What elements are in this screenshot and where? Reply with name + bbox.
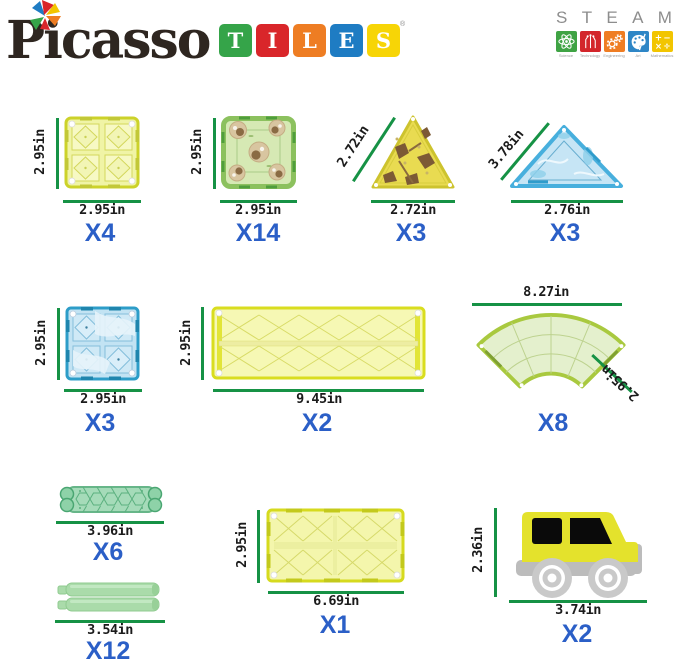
dimension-line (494, 508, 497, 597)
straight-rail-pieces (56, 581, 163, 615)
dimension-line (56, 118, 59, 189)
field-label: Art (626, 53, 650, 58)
quantity-label: X2 (262, 409, 372, 438)
height-dimension: 2.95in (189, 120, 207, 184)
height-dimension: 2.95in (32, 120, 50, 184)
steam-letters: S T E A M (552, 8, 676, 28)
science-square (556, 31, 577, 52)
quantity-label: X6 (53, 538, 163, 567)
height-dimension: 2.95in (178, 311, 196, 375)
dimension-line (257, 510, 260, 583)
width-dimension: 2.95in (203, 202, 313, 220)
steam-letter: M (658, 8, 672, 28)
quantity-label: X3 (510, 219, 620, 248)
pinwheel-icon (28, 0, 62, 30)
gears-icon (605, 32, 624, 51)
steam-logo: S T E A M (552, 8, 676, 58)
quantity-label: X1 (280, 611, 390, 640)
dimension-line (213, 118, 216, 189)
field-label: Mathematics (650, 53, 674, 58)
quantity-label: X14 (203, 219, 313, 248)
long-rectangle-tile (211, 305, 426, 381)
tiles-letter-block: L (293, 24, 326, 57)
quantity-label: X4 (45, 219, 155, 248)
math-icon: +− ×÷ (653, 32, 672, 51)
tiles-letter-block: T (219, 24, 252, 57)
height-dimension: 2.95in (234, 513, 252, 577)
height-dimension: 2.36in (470, 518, 488, 582)
steam-letter: T (582, 8, 592, 28)
yellow-square-tile (64, 116, 140, 189)
tiles-letter-block: E (330, 24, 363, 57)
width-dimension: 2.72in (358, 202, 468, 220)
technology-square (580, 31, 601, 52)
tiles-letter-block: S (367, 24, 400, 57)
blue-square-tile (65, 306, 140, 381)
curved-road-tile (474, 308, 629, 396)
camo-triangle-tile (369, 113, 457, 191)
atom-icon (557, 32, 576, 51)
width-dimension: 3.74in (523, 602, 633, 620)
height-dimension: 2.95in (33, 311, 51, 375)
field-label: Science (554, 53, 578, 58)
steam-letter: A (632, 8, 643, 28)
green-pattern-square-tile (221, 116, 296, 189)
guardrail-piece (55, 482, 167, 517)
width-dimension: 9.45in (264, 391, 374, 409)
steam-letter: E (606, 8, 617, 28)
width-dimension: 2.95in (47, 202, 157, 220)
quantity-label: X3 (45, 409, 155, 438)
quantity-label: X8 (498, 409, 608, 438)
dimension-line (57, 308, 60, 380)
rectangle-tile (266, 508, 405, 584)
quantity-label: X2 (522, 620, 632, 649)
svg-text:×: × (654, 42, 661, 51)
width-dimension: 2.95in (48, 391, 158, 409)
steam-field-labels: Science Technology Engineering Art Mathe… (552, 53, 676, 58)
quantity-label: X12 (53, 637, 163, 664)
registered-mark: ® (400, 21, 405, 28)
svg-text:÷: ÷ (663, 42, 670, 51)
dimension-line (201, 307, 204, 380)
width-dimension: 2.76in (512, 202, 622, 220)
dimension-line (472, 303, 622, 306)
palette-icon (629, 32, 648, 51)
tiles-logo-blocks: T I L E S (219, 24, 400, 57)
steam-letter: S (556, 8, 567, 28)
math-square: +− ×÷ (652, 31, 673, 52)
quantity-label: X3 (356, 219, 466, 248)
field-label: Engineering (602, 53, 626, 58)
engineering-square (604, 31, 625, 52)
field-label: Technology (578, 53, 602, 58)
circuit-icon (581, 32, 600, 51)
product-dimension-diagram: Picasso T I L E S ® S T E A M (0, 0, 679, 664)
top-dimension: 8.27in (491, 284, 601, 302)
art-square (628, 31, 649, 52)
width-dimension: 6.69in (281, 593, 391, 611)
tiles-letter-block: I (256, 24, 289, 57)
car-vehicle (508, 504, 646, 599)
steam-icon-squares: +− ×÷ (552, 31, 676, 52)
